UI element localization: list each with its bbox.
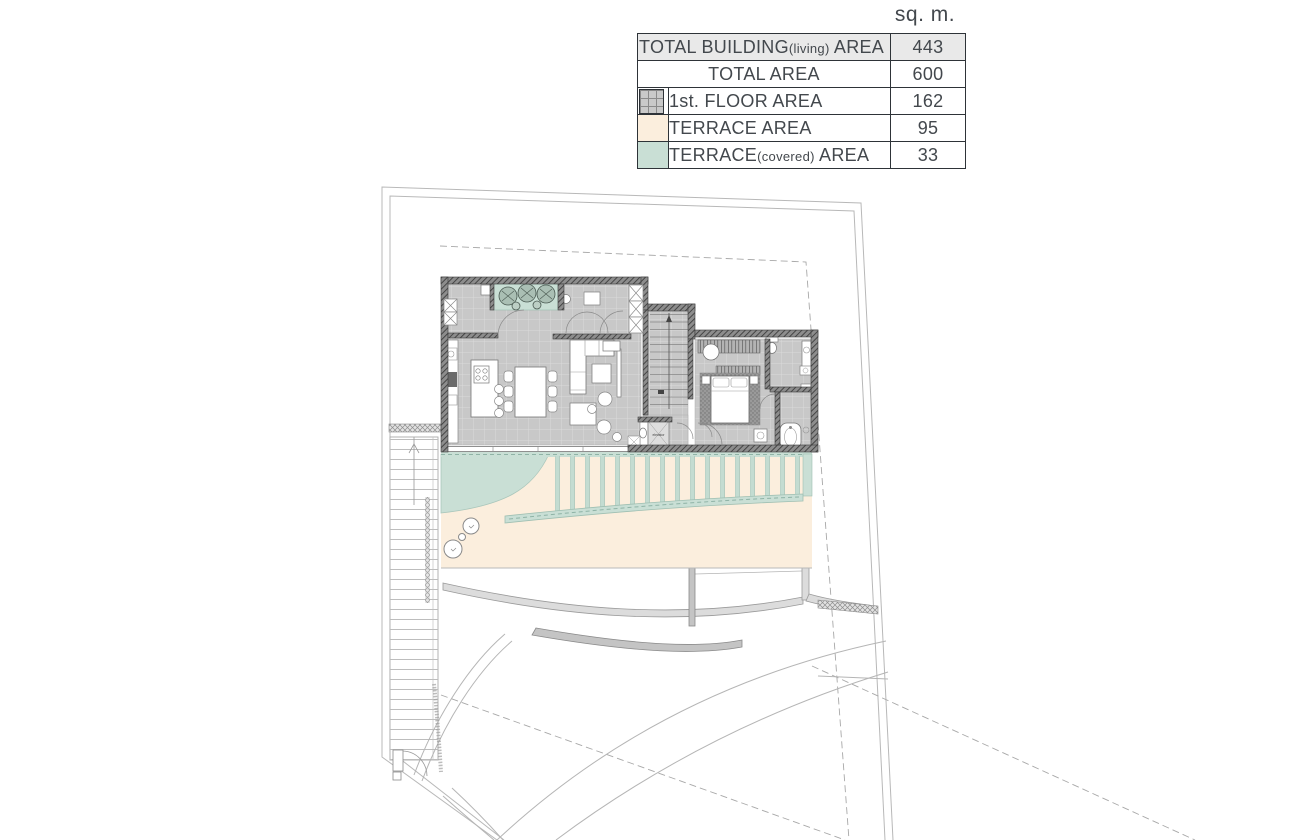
swatch-cell	[638, 115, 669, 142]
row-value: 600	[891, 61, 966, 88]
row-value: 162	[891, 88, 966, 115]
bar-stools	[495, 385, 504, 418]
exterior-staircase	[389, 424, 441, 760]
side-table	[592, 364, 611, 383]
console	[603, 341, 620, 351]
row-label: TERRACE(covered) AREA	[669, 142, 891, 169]
pillow	[713, 378, 729, 387]
tv-unit	[617, 349, 621, 397]
area-summary-table: TOTAL BUILDING(living) AREA 443 TOTAL AR…	[637, 33, 966, 169]
floor-plan-sheet: { "unit_header": "sq. m.", "area_table":…	[0, 0, 1290, 840]
row-value: 443	[891, 34, 966, 61]
row-label: TOTAL BUILDING(living) AREA	[638, 34, 891, 61]
swatch-cell	[638, 142, 669, 169]
stair-side-wall	[425, 497, 430, 603]
curved-wall-upper	[443, 583, 803, 617]
armchair	[703, 344, 719, 360]
hall-cabinet	[584, 292, 600, 305]
elevator: elevator	[648, 421, 669, 447]
row-label: TERRACE AREA	[669, 115, 891, 142]
terrace-covered-swatch	[638, 142, 668, 168]
row-label: 1st. FLOOR AREA	[669, 88, 891, 115]
wc-toilet	[640, 428, 647, 438]
sink	[800, 366, 811, 375]
row-value: 95	[891, 115, 966, 142]
dining-table	[515, 367, 546, 417]
curved-wall-lower	[532, 628, 742, 651]
interior-staircase	[650, 313, 688, 411]
row-value: 33	[891, 142, 966, 169]
table-row-terrace-covered: TERRACE(covered) AREA 33	[638, 142, 966, 169]
elevator-label: elevator	[652, 433, 665, 437]
terrace-swatch	[638, 115, 668, 141]
table-row-total-area: TOTAL AREA 600	[638, 61, 966, 88]
wall-post	[689, 568, 695, 626]
retaining-walls	[443, 568, 878, 651]
glass-facade	[448, 447, 628, 452]
washer	[754, 429, 767, 442]
nightstand	[702, 376, 710, 384]
retaining-wall-band	[389, 424, 441, 432]
stove	[474, 366, 489, 383]
floor-swatch	[639, 89, 664, 114]
terrace	[441, 452, 812, 568]
table-row-terrace: TERRACE AREA 95	[638, 115, 966, 142]
unit-header: sq. m.	[880, 3, 970, 27]
swatch-cell	[638, 88, 669, 115]
table-row-first-floor: 1st. FLOOR AREA 162	[638, 88, 966, 115]
dining-area	[504, 367, 557, 417]
driveway-arc-outer	[497, 641, 886, 840]
pillow	[731, 378, 747, 387]
driveway-arc-inner	[556, 672, 888, 840]
nightstand	[750, 376, 758, 384]
row-label: TOTAL AREA	[638, 61, 891, 88]
table-row-total-building: TOTAL BUILDING(living) AREA 443	[638, 34, 966, 61]
